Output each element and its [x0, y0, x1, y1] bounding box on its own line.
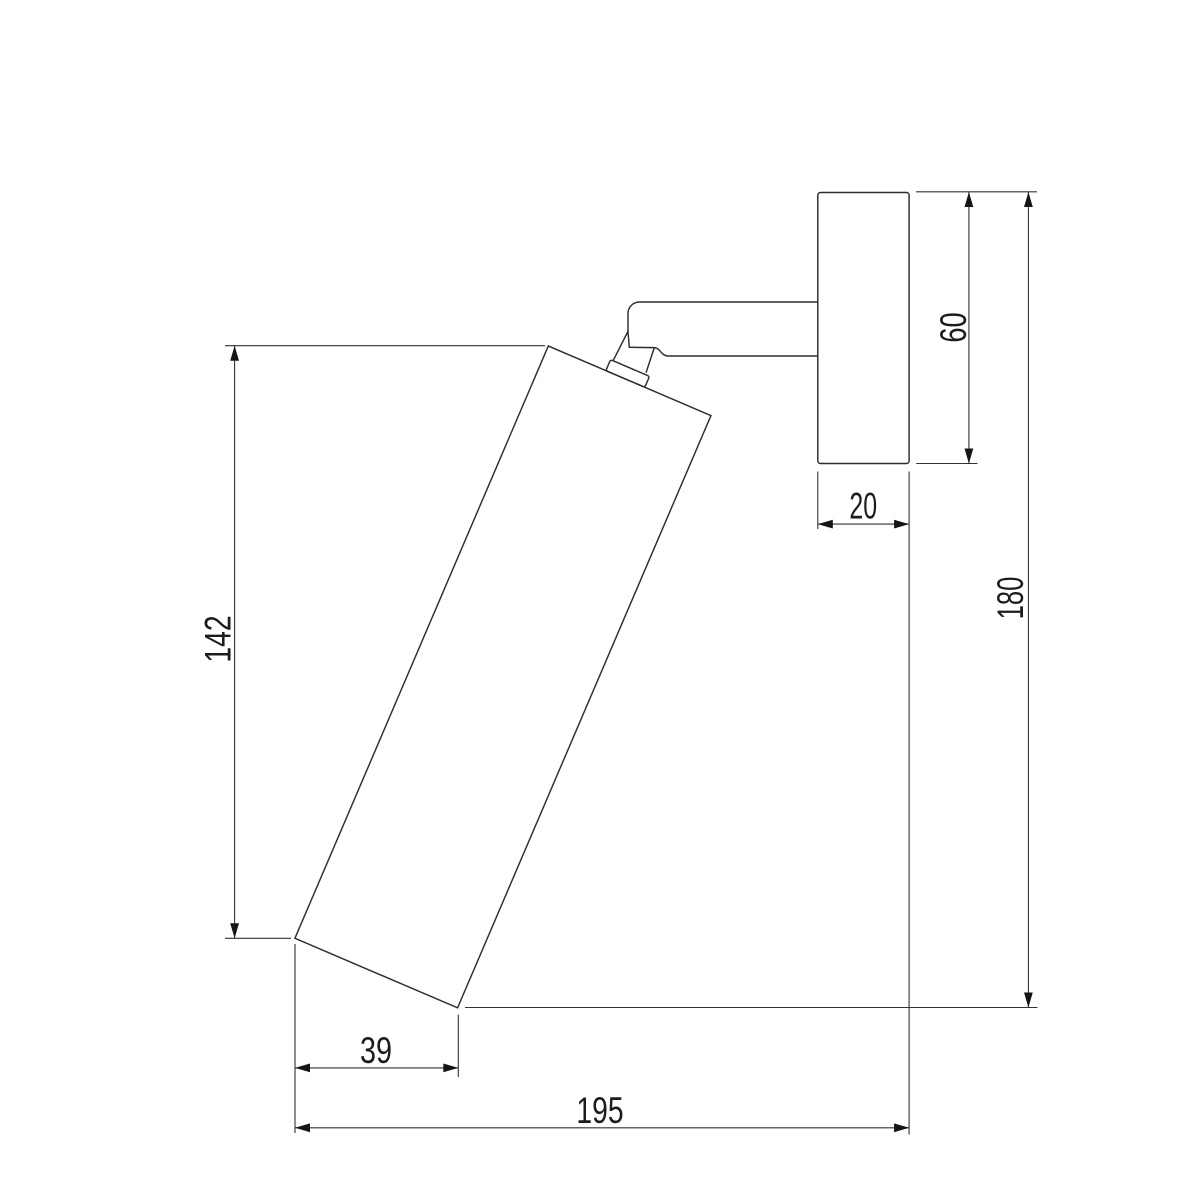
svg-text:39: 39 — [360, 1030, 392, 1071]
svg-text:180: 180 — [990, 577, 1031, 620]
svg-text:20: 20 — [849, 485, 877, 526]
svg-text:195: 195 — [576, 1090, 623, 1131]
svg-text:60: 60 — [933, 312, 974, 342]
svg-text:142: 142 — [197, 615, 238, 662]
